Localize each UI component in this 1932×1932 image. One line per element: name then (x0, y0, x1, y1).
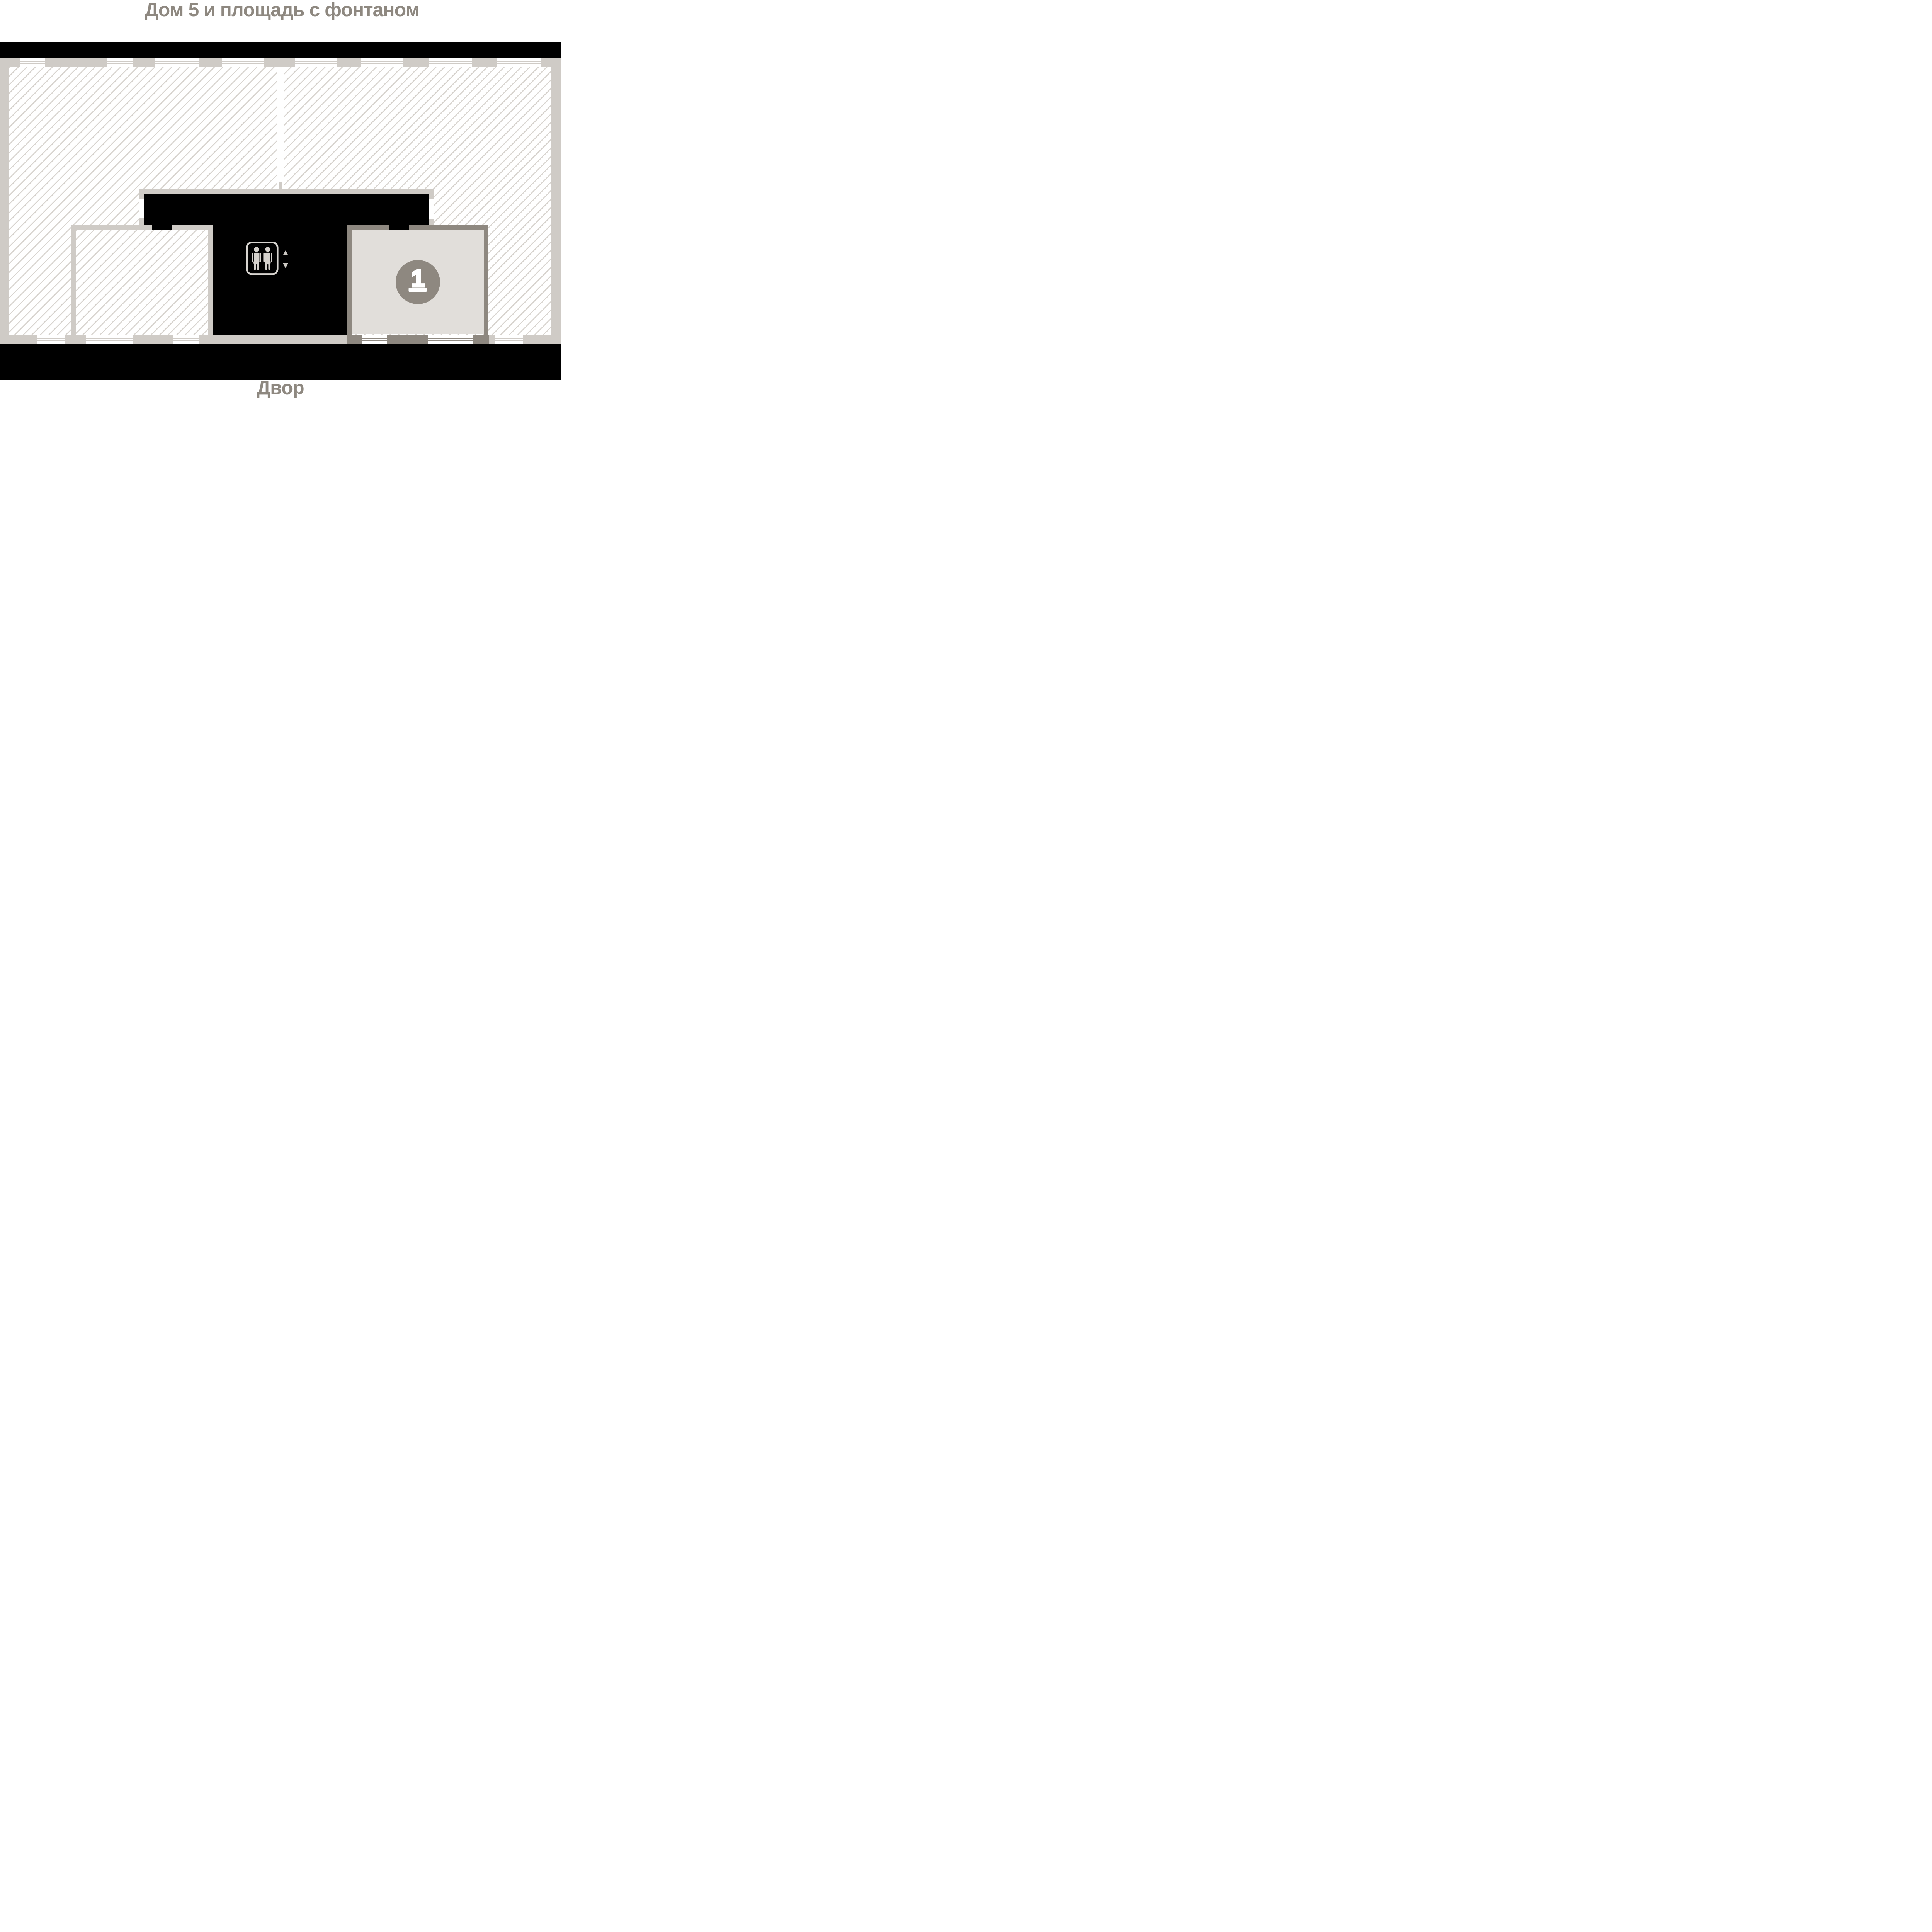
left-wall (0, 58, 9, 344)
window (428, 335, 473, 344)
room-top-wall (71, 225, 213, 230)
room-left-wall (71, 230, 76, 335)
top-black-band (0, 42, 561, 58)
apartment-1-door-opening (389, 225, 409, 230)
window (155, 58, 199, 67)
bottom-black-band (0, 344, 561, 380)
apartment-1-top-wall (347, 225, 488, 230)
page-title: Дом 5 и площадь с фонтаном (0, 0, 561, 21)
corridor-top-wall (139, 189, 434, 194)
apartment-1-right-wall (484, 225, 488, 335)
apartment-1-left-wall (347, 225, 352, 335)
corridor-right-bracket-gap (429, 199, 434, 218)
top-wall (0, 58, 561, 67)
window (222, 58, 264, 67)
window (362, 335, 387, 344)
room-divider (277, 67, 284, 194)
triangle-up-icon (283, 250, 288, 255)
window (86, 335, 133, 344)
corridor-left-bracket-gap (139, 199, 144, 218)
room-door-opening (152, 225, 172, 230)
apartment-1-badge[interactable]: 1 (396, 260, 440, 304)
window (495, 335, 522, 344)
elevator-icon (246, 241, 279, 275)
window (107, 58, 133, 67)
floor-plan-page: Дом 5 и площадь с фонтаном (0, 0, 561, 403)
window (173, 335, 199, 344)
window (295, 58, 337, 67)
number-base-bar (409, 288, 427, 292)
room-right-wall (208, 225, 213, 335)
core-corridor (144, 194, 429, 225)
window (429, 58, 472, 67)
courtyard-label: Двор (0, 377, 561, 399)
right-wall (551, 58, 561, 344)
window (37, 335, 65, 344)
core-area (213, 225, 347, 334)
window (361, 58, 403, 67)
window (20, 58, 45, 67)
triangle-down-icon (283, 263, 288, 268)
window (497, 58, 541, 67)
